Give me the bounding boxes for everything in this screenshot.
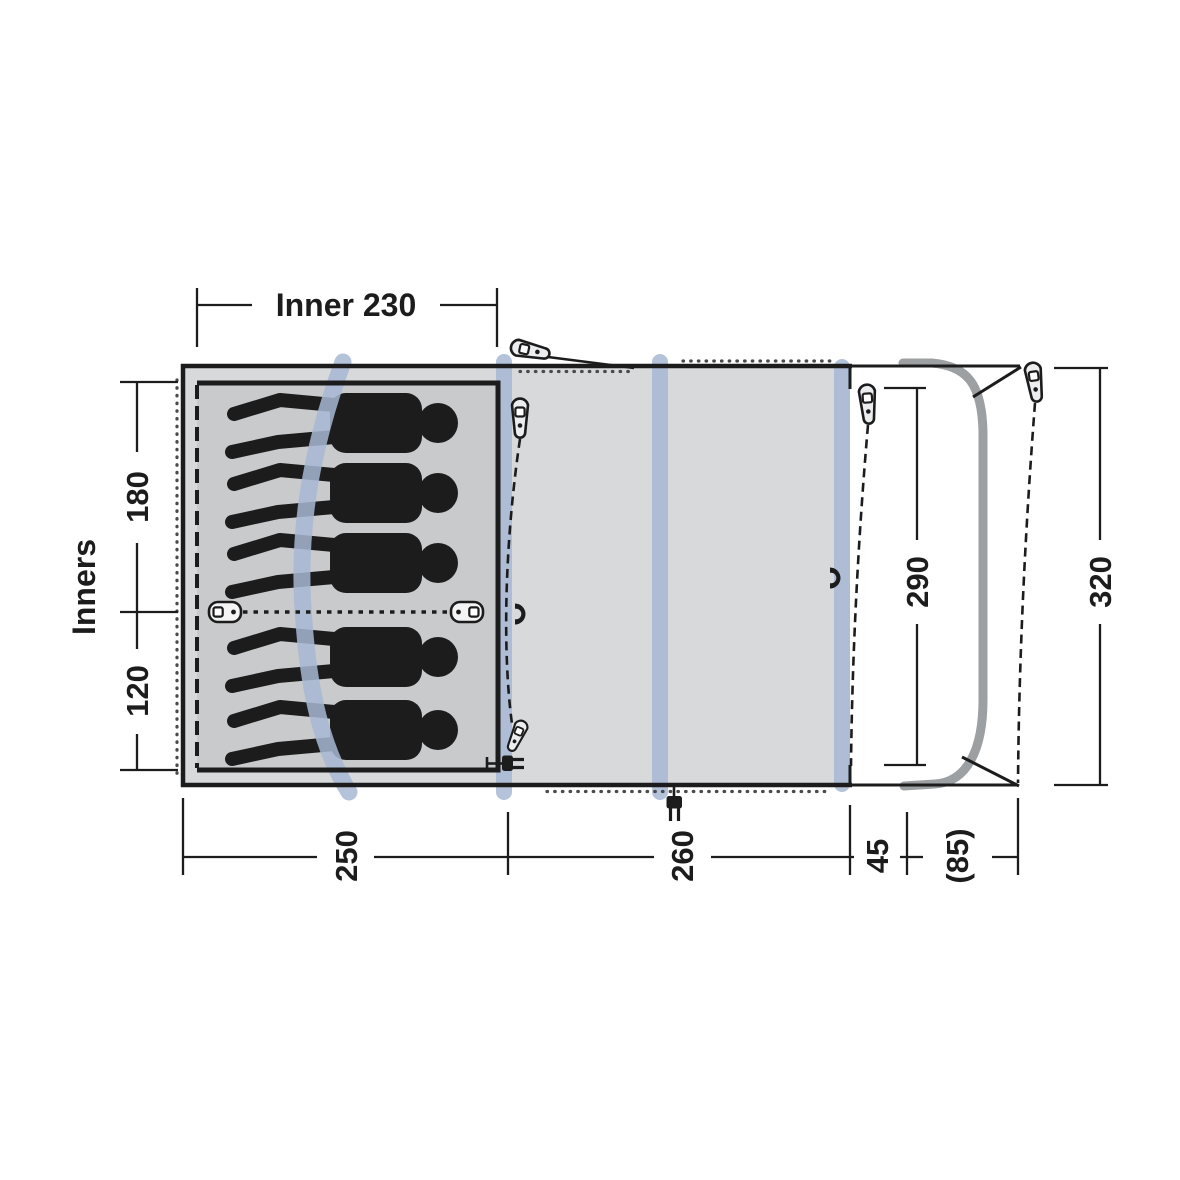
toggle-icon [209, 602, 241, 622]
dim-label-250: 250 [329, 830, 364, 882]
dim-label-180: 180 [120, 471, 155, 523]
dim-label-85: (85) [940, 828, 975, 883]
guy-line [851, 425, 868, 766]
guy-line [1018, 403, 1035, 783]
canopy-corner-strap [973, 367, 1021, 397]
dim-label-120: 120 [120, 665, 155, 717]
tent-floorplan-diagram: Inner 230 180 120 Inners 250 260 45 (85)… [0, 0, 1180, 1180]
inners-label: Inners [66, 539, 102, 635]
dim-label-260: 260 [665, 830, 700, 882]
floorplan-svg: Inner 230 180 120 Inners 250 260 45 (85)… [0, 0, 1180, 1180]
peg-icon [1024, 362, 1045, 403]
dim-label-290: 290 [900, 556, 935, 608]
toggle-icon [451, 602, 483, 622]
canopy-corner-strap [962, 757, 1019, 786]
peg-icon [512, 399, 528, 438]
peg-icon [509, 339, 551, 363]
peg-icon [858, 384, 877, 424]
dim-label-inner-width: Inner 230 [276, 287, 417, 323]
dim-label-45: 45 [860, 839, 895, 873]
dim-label-320: 320 [1083, 556, 1118, 608]
